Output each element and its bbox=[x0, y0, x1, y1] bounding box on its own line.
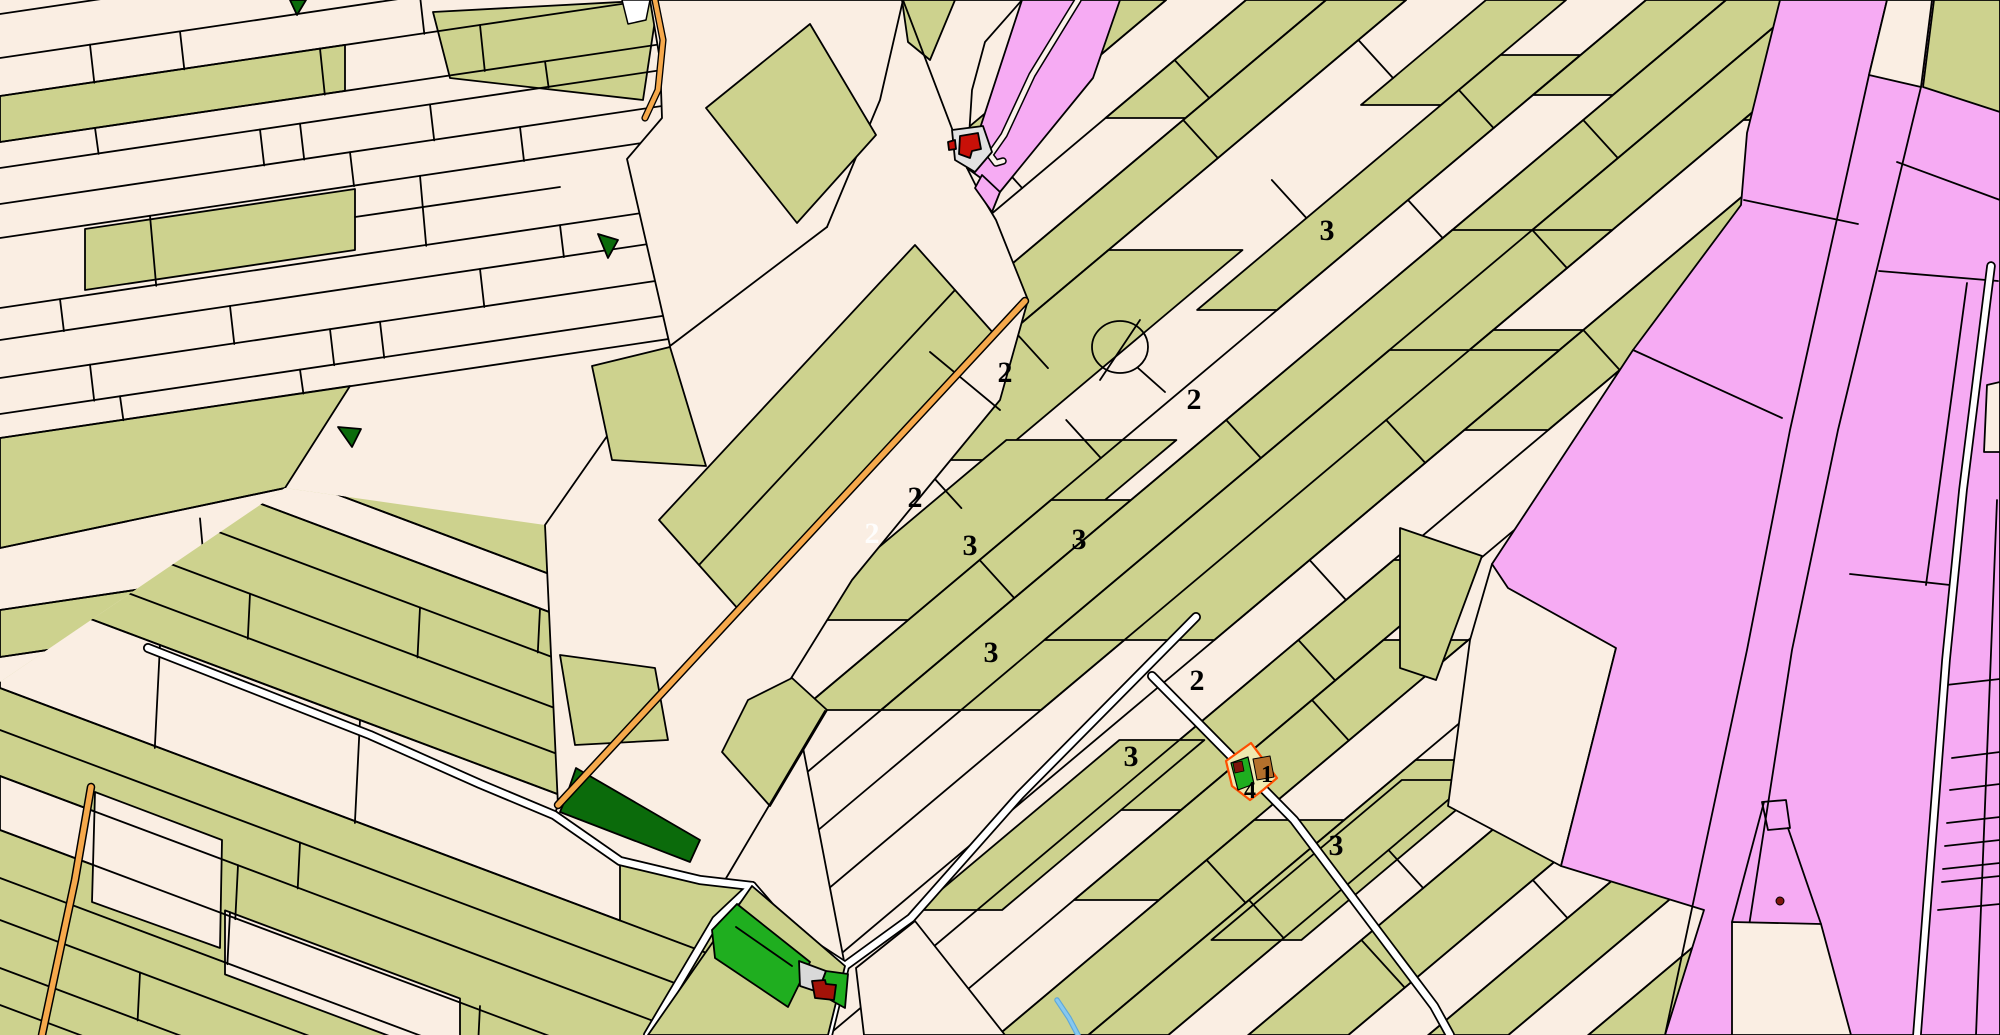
svg-text:3: 3 bbox=[1072, 523, 1087, 556]
svg-text:3: 3 bbox=[1124, 740, 1139, 773]
svg-text:2: 2 bbox=[1187, 383, 1202, 416]
svg-text:3: 3 bbox=[1329, 829, 1344, 862]
svg-text:3: 3 bbox=[984, 636, 999, 669]
svg-text:1: 1 bbox=[1261, 762, 1273, 788]
svg-text:4: 4 bbox=[1244, 778, 1256, 804]
svg-text:2: 2 bbox=[998, 356, 1013, 389]
svg-text:2: 2 bbox=[1190, 664, 1205, 697]
svg-text:3: 3 bbox=[963, 529, 978, 562]
svg-text:3: 3 bbox=[1320, 214, 1335, 247]
svg-text:2: 2 bbox=[908, 481, 923, 514]
svg-text:2: 2 bbox=[865, 517, 880, 550]
